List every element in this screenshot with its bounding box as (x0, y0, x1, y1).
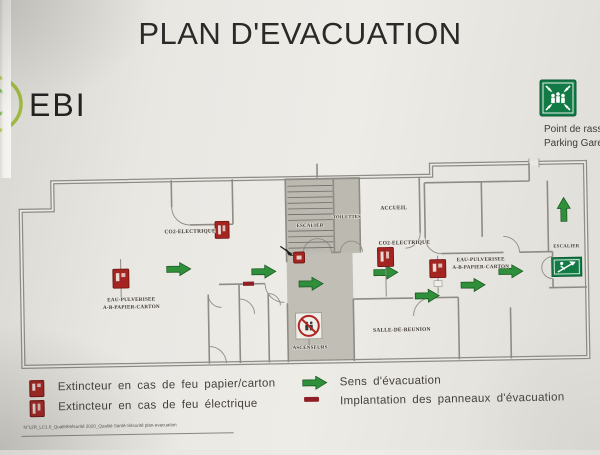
room-label-salle-de-reunion: SALLE-DE-REUNION (373, 327, 431, 334)
evacuation-arrow (461, 278, 485, 291)
evacuation-arrow (415, 289, 439, 302)
label-eau-left-1: EAU-PULVERISEE (107, 297, 156, 304)
panel-marker-dash (243, 282, 254, 286)
room-label-co2-left: CO2-ELECTRIQUE (164, 228, 216, 235)
room-label-escalier-right: ESCALIER (553, 244, 580, 249)
extinguisher-paper-icon (29, 379, 45, 397)
extinguisher-icon-co2-left (215, 221, 229, 238)
photo-of-evacuation-plan: { "title": "PLAN D'EVACUATION", "logo": … (0, 0, 600, 450)
panel-marker-icon (304, 397, 320, 403)
legend-label-sens-evacuation: Sens d'évacuation (340, 375, 441, 389)
room-label-accueil: ACCUEIL (380, 205, 407, 211)
evacuation-arrow-icon (301, 376, 329, 390)
plan-and-legend-tilt-wrapper: ESCALIER TOILETTES ACCUEIL CO2-ELECTRIQU… (0, 0, 600, 455)
evacuation-arrow-up (557, 197, 570, 221)
extinguisher-icon-co2-right (377, 247, 393, 266)
evacuation-arrow (252, 265, 276, 278)
room-label-escalier-center: ESCALIER (296, 224, 323, 229)
wall-box (434, 281, 442, 287)
label-eau-left-2: A-B-PAPIER-CARTON (103, 304, 160, 311)
evacuation-arrows (166, 197, 572, 307)
extinguisher-icon-paper-right (430, 259, 446, 277)
evacuation-arrow (167, 262, 191, 275)
room-label-ascenseurs: ASCENSEURS (293, 346, 328, 352)
room-label-toilettes: TOILETTES (333, 214, 361, 219)
label-eau-right-2: A-B-PAPIER-CARTON (452, 264, 509, 271)
extinguisher-electric-icon (29, 399, 45, 417)
label-eau-right-1: EAU-PULVERISEE (457, 256, 506, 263)
extinguisher-icon-paper-left (113, 269, 129, 288)
room-label-co2-right: CO2-ELECTRIQUE (379, 240, 431, 247)
exit-sign-icon (552, 257, 582, 277)
